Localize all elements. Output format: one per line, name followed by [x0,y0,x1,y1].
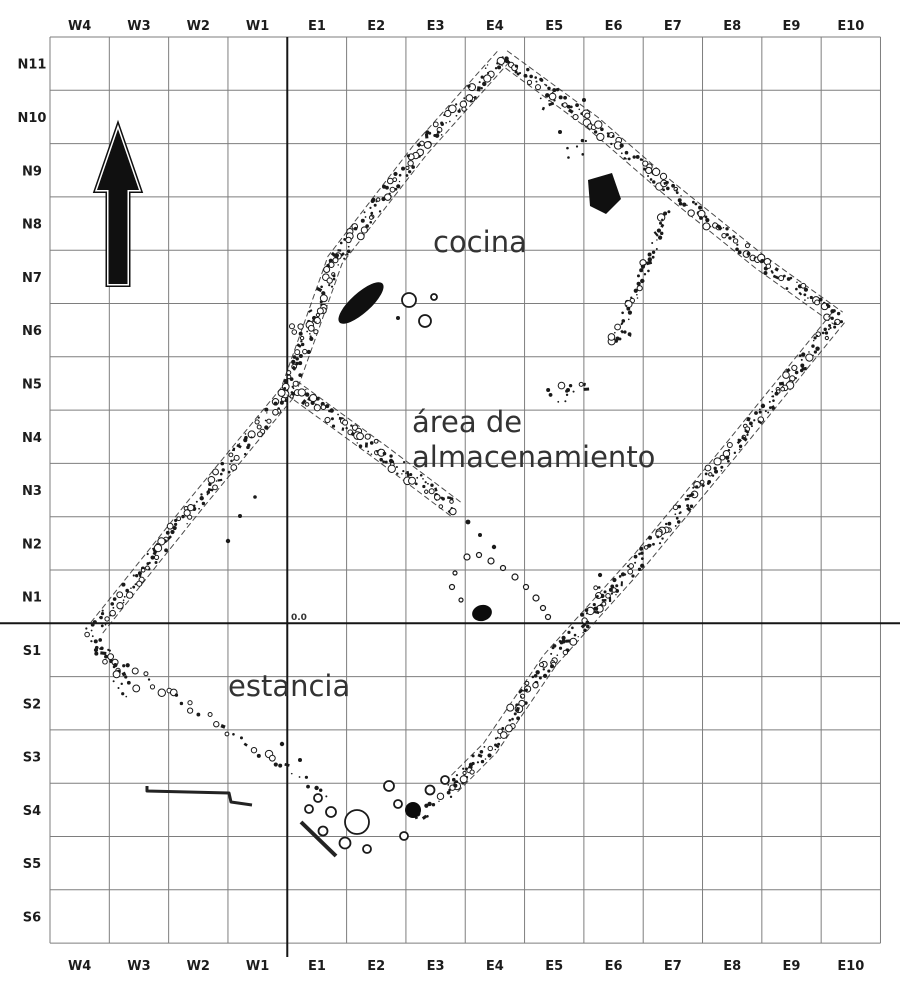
room-label-almacenamiento-line2: almacenamiento [412,440,655,474]
vessel-circle [431,294,437,300]
row-label-N7: N7 [22,271,42,286]
grid-lines [50,37,880,943]
vessel-circle [400,832,408,840]
vessel-circle [345,810,369,834]
vessel-circle [402,293,416,307]
vessel-circle [384,781,394,791]
col-label-top-E4: E4 [486,19,504,34]
room-label-estancia: estancia [228,669,350,703]
stone-alignment-ring [453,571,457,575]
col-label-bottom-E9: E9 [783,959,801,974]
row-label-N4: N4 [22,431,42,446]
small-stone [298,758,302,762]
small-stone [466,520,471,525]
row-label-N11: N11 [18,58,47,73]
wall-west-corner-rubble [85,627,140,697]
col-label-bottom-E6: E6 [605,959,623,974]
vessel-circle [426,786,435,795]
col-label-top-E9: E9 [783,19,801,34]
room-label-cocina: cocina [433,225,527,259]
s4-wall-segment [147,786,252,805]
vessel-circle [340,838,351,849]
stone-alignment-ring [477,553,482,558]
wall-se-wall [444,313,844,794]
small-stone [558,130,562,134]
stone-cluster-0 [546,382,589,402]
wall-ne-wall [499,51,843,324]
row-label-N2: N2 [22,537,42,552]
row-label-N1: N1 [22,591,42,606]
col-label-top-W4: W4 [68,19,91,34]
row-label-S5: S5 [23,857,41,872]
row-label-N9: N9 [22,164,42,179]
grid-labels: W4W4W3W3W2W2W1W1E1E1E2E2E3E3E4E4E5E5E6E6… [18,19,865,974]
row-label-S3: S3 [23,751,41,766]
north-arrow-icon [97,129,139,284]
posthole-dot-0 [470,603,493,624]
small-stone [478,533,482,537]
row-label-N3: N3 [22,484,42,499]
small-stone [492,545,496,549]
col-label-bottom-E7: E7 [664,959,682,974]
wall-nw-wall [89,52,509,635]
row-label-N5: N5 [22,377,42,392]
small-stone [396,316,400,320]
col-label-top-E8: E8 [723,19,741,34]
col-label-bottom-E8: E8 [723,959,741,974]
stone-alignment-ring [464,554,470,560]
row-label-S6: S6 [23,910,41,925]
site-plan-page: W4W4W3W3W2W2W1W1E1E1E2E2E3E3E4E4E5E5E6E6… [0,0,900,986]
col-label-top-W1: W1 [246,19,269,34]
room-label-almacenamiento-line1: área de [412,405,522,439]
col-label-top-E5: E5 [545,19,563,34]
vessel-circle [326,807,336,817]
vessel-circle [394,800,402,808]
col-label-bottom-W4: W4 [68,959,91,974]
col-label-bottom-E1: E1 [308,959,326,974]
row-label-N10: N10 [18,111,47,126]
col-label-top-E1: E1 [308,19,326,34]
small-stone [582,98,586,102]
vessel-circle [419,315,431,327]
excavation-plan: W4W4W3W3W2W2W1W1E1E1E2E2E3E3E4E4E5E5E6E6… [0,0,900,986]
vessel-circle [319,827,328,836]
stone-alignment-ring [541,606,546,611]
row-label-S1: S1 [23,644,41,659]
stone-alignment-ring [459,598,463,602]
col-label-bottom-W2: W2 [187,959,210,974]
stone-alignment-ring [501,566,506,571]
stone-alignment-ring [512,574,518,580]
vessel-circle [441,776,449,784]
row-label-S4: S4 [23,804,41,819]
stone-alignment-ring [524,585,529,590]
features [147,93,631,856]
row-label-N8: N8 [22,218,42,233]
vessel-circle [314,794,322,802]
datum-origin-label: 0.0 [291,613,307,623]
col-label-top-E7: E7 [664,19,682,34]
vessel-circle [363,845,371,853]
small-stone [226,539,230,543]
wall-dark-feature [588,173,621,214]
stone-alignment-ring [533,595,539,601]
col-label-top-E3: E3 [427,19,445,34]
col-label-top-W3: W3 [127,19,150,34]
col-label-top-E10: E10 [837,19,864,34]
wall-partition-ne [608,210,670,345]
room-labels: cocinaárea dealmacenamientoestancia0.0 [228,225,655,703]
posthole-dot-1 [405,802,421,818]
col-label-bottom-E5: E5 [545,959,563,974]
col-label-bottom-E10: E10 [837,959,864,974]
stone-alignment-ring [450,585,455,590]
vessel-circle [305,805,313,813]
row-label-S2: S2 [23,697,41,712]
stone-cluster-5 [289,324,308,336]
col-label-bottom-W1: W1 [246,959,269,974]
col-label-bottom-E4: E4 [486,959,504,974]
col-label-bottom-E2: E2 [367,959,385,974]
stone-alignment-ring [546,615,551,620]
col-label-top-W2: W2 [187,19,210,34]
row-label-N6: N6 [22,324,42,339]
small-stone [253,495,257,499]
small-stone [280,742,284,746]
sw-wall-fragment [301,822,336,856]
col-label-top-E6: E6 [605,19,623,34]
stone-alignment-ring [488,558,494,564]
small-stone [238,514,242,518]
col-label-bottom-E3: E3 [427,959,445,974]
col-label-top-E2: E2 [367,19,385,34]
col-label-bottom-W3: W3 [127,959,150,974]
